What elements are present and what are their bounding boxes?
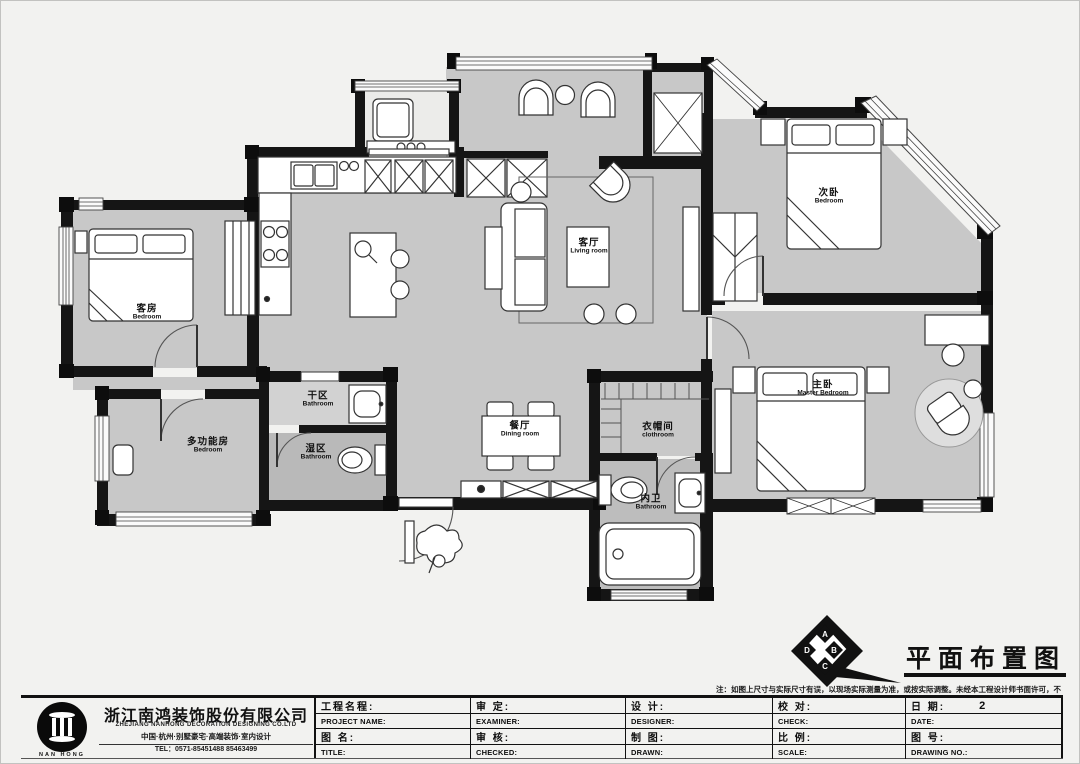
company-logo: [37, 702, 87, 752]
entry-decor: [405, 521, 462, 573]
company-block: NAN HONG 浙江南鸿装饰股份有限公司 ZHEJIANG NANHONG D…: [21, 698, 316, 758]
compass-letter-c: C: [822, 662, 828, 671]
note-text: 注：如图上尺寸与实际尺寸有误，以现场实际测量为准，或按实际调整。未经本工程设计师…: [716, 684, 1061, 695]
field-examiner-cn: 审 定:: [471, 698, 626, 714]
field-drawn-cn: 制 图:: [626, 729, 773, 745]
field-check-en: CHECK:: [773, 714, 906, 729]
field-scale-cn: 比 例:: [773, 729, 906, 745]
company-tagline: 中国·杭州·别墅豪宅·高端装饰·室内设计: [99, 731, 313, 745]
field-drawn-en: DRAWN:: [626, 745, 773, 759]
drawing-title: 平面布置图: [906, 639, 1066, 675]
field-date-en: DATE:: [906, 714, 1061, 729]
field-designer-cn: 设 计:: [626, 698, 773, 714]
compass-letter-a: A: [822, 630, 828, 639]
field-project-name-cn: 工程名程:: [316, 698, 471, 714]
multi-room-seat: [113, 445, 133, 475]
title-underline: [904, 673, 1066, 677]
field-date-value: 2: [979, 700, 985, 712]
field-date-cn: 日 期: 2: [906, 698, 1061, 714]
title-block-fields: 工程名程: 审 定: 设 计: 校 对: 日 期: 2 PROJECT NAME…: [316, 698, 1063, 758]
field-checked-en: CHECKED:: [471, 745, 626, 759]
field-scale-en: SCALE:: [773, 745, 906, 759]
company-name-en: ZHEJIANG NANHONG DECORATION DESIGNING CO…: [99, 722, 313, 728]
field-drawing-no-en: DRAWING NO.:: [906, 745, 1061, 759]
shaft-box: [654, 93, 702, 153]
field-date-label: 日 期:: [911, 698, 945, 713]
field-project-name-en: PROJECT NAME:: [316, 714, 471, 729]
title-block: NAN HONG 浙江南鸿装饰股份有限公司 ZHEJIANG NANHONG D…: [21, 695, 1063, 759]
field-title-cn: 图 名:: [316, 729, 471, 745]
field-check-cn: 校 对:: [773, 698, 906, 714]
guest-bedroom-furniture: [75, 221, 255, 321]
field-examiner-en: EXAMINER:: [471, 714, 626, 729]
compass-letter-b: B: [831, 646, 837, 655]
compass-icon: A B C D: [783, 613, 903, 691]
field-checked-cn: 审 核:: [471, 729, 626, 745]
field-designer-en: DESIGNER:: [626, 714, 773, 729]
drawing-sheet: 客厅 Living room 餐厅 Dining room 客房 Bedroom…: [0, 0, 1080, 764]
logo-pillar-icon: [37, 702, 87, 752]
field-drawing-no-cn: 图 号:: [906, 729, 1061, 745]
company-tel: TEL：0571-85451488 85463499: [99, 744, 313, 754]
compass-letter-d: D: [804, 646, 810, 655]
logo-text: NAN HONG: [37, 752, 87, 758]
field-title-en: TITLE:: [316, 745, 471, 759]
